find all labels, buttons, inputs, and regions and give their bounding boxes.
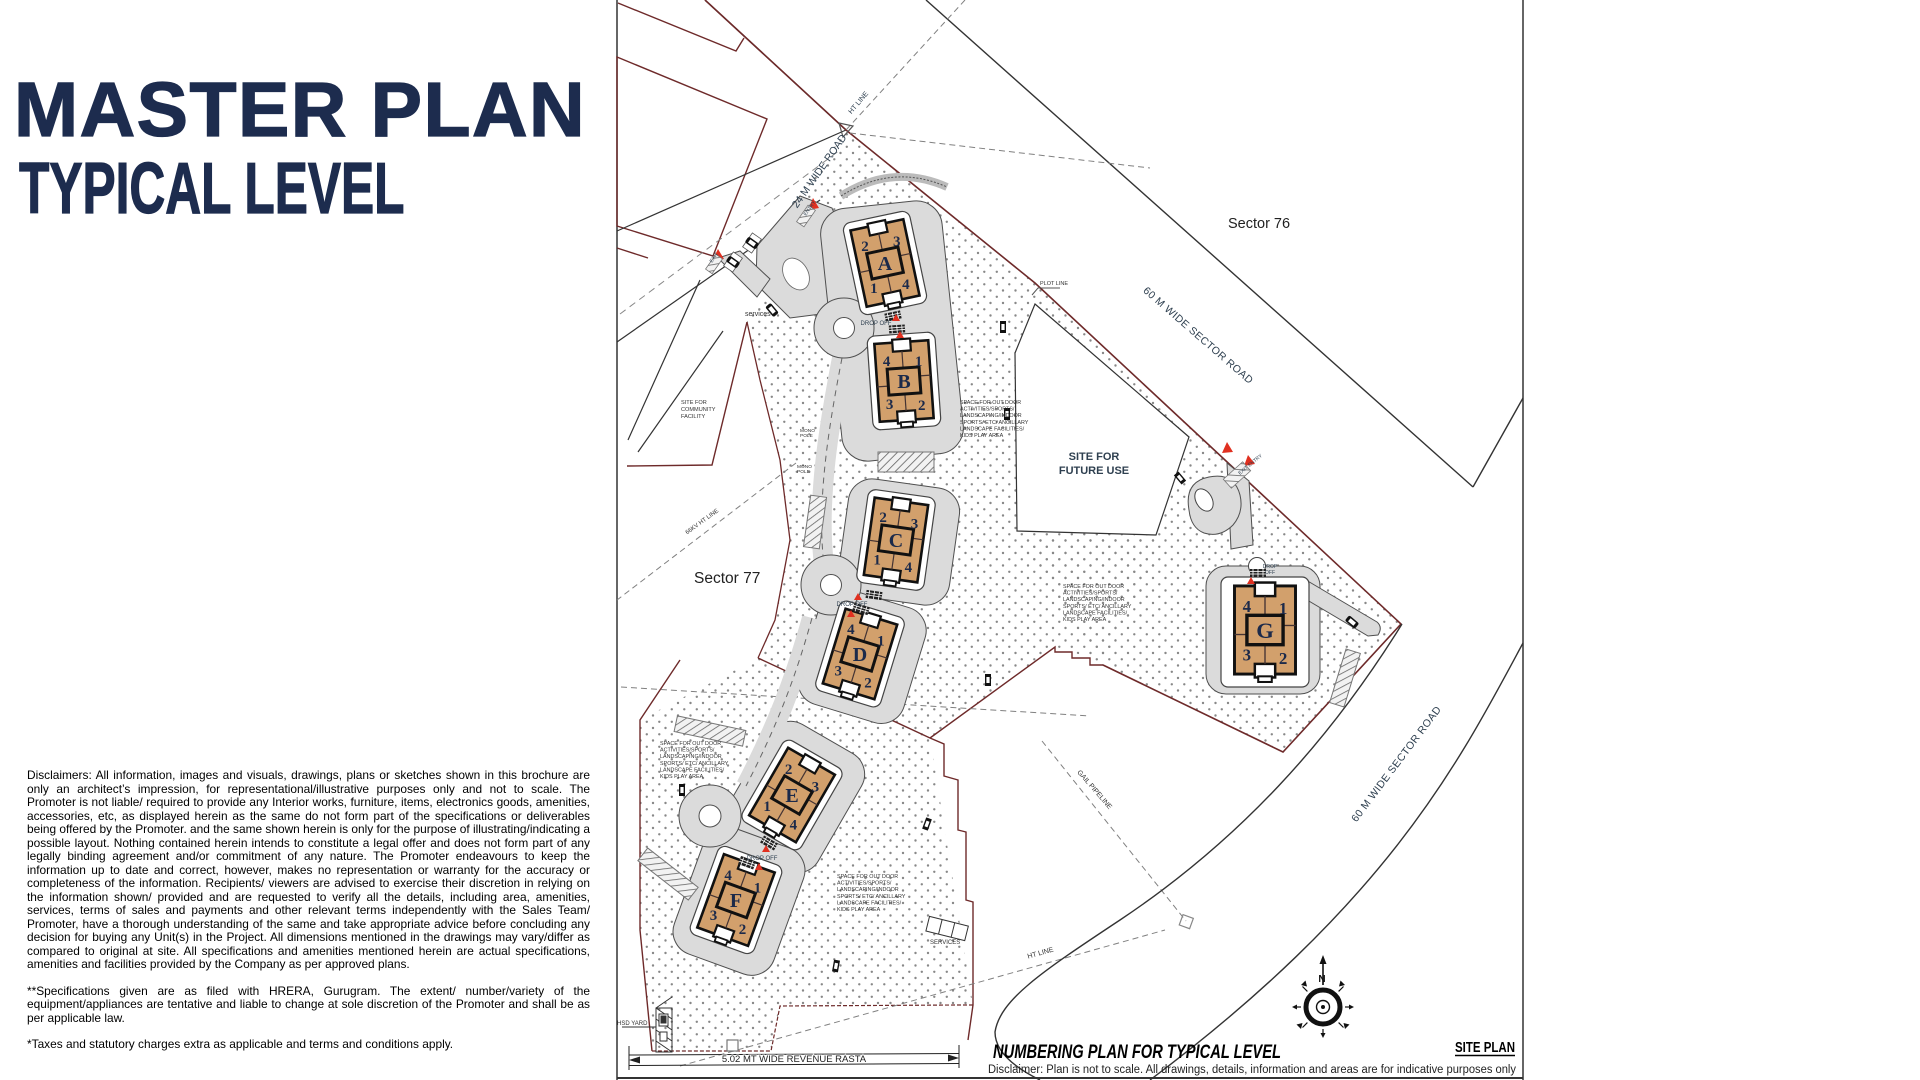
svg-text:KIDS PLAY AREA: KIDS PLAY AREA xyxy=(660,774,704,780)
svg-text:2: 2 xyxy=(864,676,872,692)
svg-text:4: 4 xyxy=(1243,597,1252,616)
svg-text:HT LINE: HT LINE xyxy=(848,90,871,115)
svg-text:LANDSCAPE FACILITIES/: LANDSCAPE FACILITIES/ xyxy=(837,900,902,906)
svg-text:2: 2 xyxy=(785,762,793,778)
svg-text:LANDSCAPING/INDOOR: LANDSCAPING/INDOOR xyxy=(1063,597,1125,603)
svg-text:3: 3 xyxy=(886,397,894,413)
svg-text:OFF: OFF xyxy=(1265,570,1275,576)
svg-text:1: 1 xyxy=(1279,599,1287,618)
svg-text:C: C xyxy=(889,530,903,552)
svg-text:LANDSCAPING/INDOOR: LANDSCAPING/INDOOR xyxy=(660,754,722,760)
svg-text:COMMUNITY: COMMUNITY xyxy=(681,407,716,413)
svg-text:LANDSCAPE FACILITIES/: LANDSCAPE FACILITIES/ xyxy=(960,426,1025,432)
svg-text:3: 3 xyxy=(1243,646,1251,665)
svg-text:LANDSCAPE FACILITIES/: LANDSCAPE FACILITIES/ xyxy=(1063,610,1128,616)
svg-text:2: 2 xyxy=(861,239,869,255)
svg-text:SPORTS/ ETC/ ANCILLARY: SPORTS/ ETC/ ANCILLARY xyxy=(960,420,1029,426)
svg-text:N: N xyxy=(1318,974,1325,985)
svg-text:SITE FOR: SITE FOR xyxy=(681,400,707,406)
svg-text:D: D xyxy=(853,644,867,666)
svg-text:4: 4 xyxy=(883,354,891,370)
svg-text:1: 1 xyxy=(915,354,923,370)
svg-text:FUTURE USE: FUTURE USE xyxy=(1059,465,1129,477)
svg-text:KIDS PLAY AREA: KIDS PLAY AREA xyxy=(960,433,1004,439)
svg-text:3: 3 xyxy=(812,780,820,796)
svg-text:ACTIVITIES/SPORTS/: ACTIVITIES/SPORTS/ xyxy=(1063,591,1118,597)
svg-text:DROP OFF: DROP OFF xyxy=(747,856,778,862)
svg-text:Disclaimer: Plan is not to sca: Disclaimer: Plan is not to scale. All dr… xyxy=(988,1064,1516,1076)
svg-text:ACTIVITIES/SPORTS/: ACTIVITIES/SPORTS/ xyxy=(960,407,1015,413)
svg-text:E: E xyxy=(785,785,798,807)
svg-text:ACTIVITIES/SPORTS/: ACTIVITIES/SPORTS/ xyxy=(837,881,892,887)
svg-text:B: B xyxy=(897,371,910,393)
svg-text:PLOT LINE: PLOT LINE xyxy=(1040,281,1068,287)
svg-text:4: 4 xyxy=(790,818,798,834)
svg-text:3: 3 xyxy=(911,516,919,532)
svg-text:4: 4 xyxy=(905,560,913,576)
svg-text:F: F xyxy=(730,890,742,912)
svg-text:DROP OFF: DROP OFF xyxy=(861,321,892,327)
svg-text:POLE: POLE xyxy=(797,469,810,475)
svg-text:SPACE FOR OUT DOOR: SPACE FOR OUT DOOR xyxy=(660,741,721,747)
svg-text:SERVICES: SERVICES xyxy=(930,940,960,946)
svg-text:1: 1 xyxy=(763,799,771,815)
svg-text:Sector 76: Sector 76 xyxy=(1228,216,1290,232)
svg-text:SPACE FOR OUT DOOR: SPACE FOR OUT DOOR xyxy=(960,400,1021,406)
svg-text:SPORTS/ ETC/ ANCILLARY: SPORTS/ ETC/ ANCILLARY xyxy=(837,894,906,900)
svg-text:4: 4 xyxy=(847,622,855,638)
svg-text:SPACE FOR OUT DOOR: SPACE FOR OUT DOOR xyxy=(837,874,898,880)
svg-text:LANDSCAPING/INDOOR: LANDSCAPING/INDOOR xyxy=(837,887,899,893)
svg-text:2: 2 xyxy=(879,510,887,526)
svg-text:SITE PLAN: SITE PLAN xyxy=(1455,1039,1515,1056)
svg-text:SPORTS/ ETC/ ANCILLARY: SPORTS/ ETC/ ANCILLARY xyxy=(1063,604,1132,610)
svg-text:FACILITY: FACILITY xyxy=(681,414,706,420)
svg-text:POLE: POLE xyxy=(800,433,813,439)
svg-text:KIDS PLAY AREA: KIDS PLAY AREA xyxy=(1063,617,1107,623)
svg-text:LANDSCAPING/INDOOR: LANDSCAPING/INDOOR xyxy=(960,413,1022,419)
svg-text:NUMBERING PLAN FOR TYPICAL LEV: NUMBERING PLAN FOR TYPICAL LEVEL xyxy=(993,1042,1281,1063)
svg-text:1: 1 xyxy=(873,553,881,569)
svg-text:A: A xyxy=(878,253,893,275)
svg-text:ACTIVITIES/SPORTS/: ACTIVITIES/SPORTS/ xyxy=(660,748,715,754)
svg-text:G: G xyxy=(1256,618,1274,643)
svg-text:1: 1 xyxy=(754,881,762,897)
svg-text:3: 3 xyxy=(710,908,718,924)
svg-text:LANDSCAPE FACILITIES/: LANDSCAPE FACILITIES/ xyxy=(660,767,725,773)
svg-text:4: 4 xyxy=(902,277,910,293)
svg-text:4: 4 xyxy=(724,868,732,884)
svg-text:SPACE FOR OUT DOOR: SPACE FOR OUT DOOR xyxy=(1063,584,1124,590)
svg-text:3: 3 xyxy=(835,663,843,679)
svg-text:2: 2 xyxy=(918,398,926,414)
svg-text:1: 1 xyxy=(877,634,885,650)
svg-text:SPORTS/ ETC/ ANCILLARY: SPORTS/ ETC/ ANCILLARY xyxy=(660,761,729,767)
svg-text:1: 1 xyxy=(870,281,878,297)
svg-text:services: services xyxy=(745,311,771,318)
svg-text:Sector 77: Sector 77 xyxy=(694,570,760,587)
svg-text:HT LINE: HT LINE xyxy=(1027,946,1055,960)
svg-text:KIDS PLAY AREA: KIDS PLAY AREA xyxy=(837,907,881,913)
svg-text:2: 2 xyxy=(1279,649,1287,668)
svg-text:2: 2 xyxy=(739,922,747,938)
svg-text:3: 3 xyxy=(893,234,901,250)
svg-text:5.02 MT WIDE REVENUE RASTA: 5.02 MT WIDE REVENUE RASTA xyxy=(722,1054,867,1065)
svg-text:HSD YARD: HSD YARD xyxy=(617,1021,648,1027)
svg-text:66KV HT LINE: 66KV HT LINE xyxy=(685,508,720,536)
svg-text:SITE FOR: SITE FOR xyxy=(1069,451,1120,463)
svg-text:60 M WIDE SECTOR ROAD: 60 M WIDE SECTOR ROAD xyxy=(1141,285,1256,387)
svg-text:60 M WIDE SECTOR ROAD: 60 M WIDE SECTOR ROAD xyxy=(1349,704,1444,824)
svg-text:DROP OFF: DROP OFF xyxy=(837,602,868,608)
